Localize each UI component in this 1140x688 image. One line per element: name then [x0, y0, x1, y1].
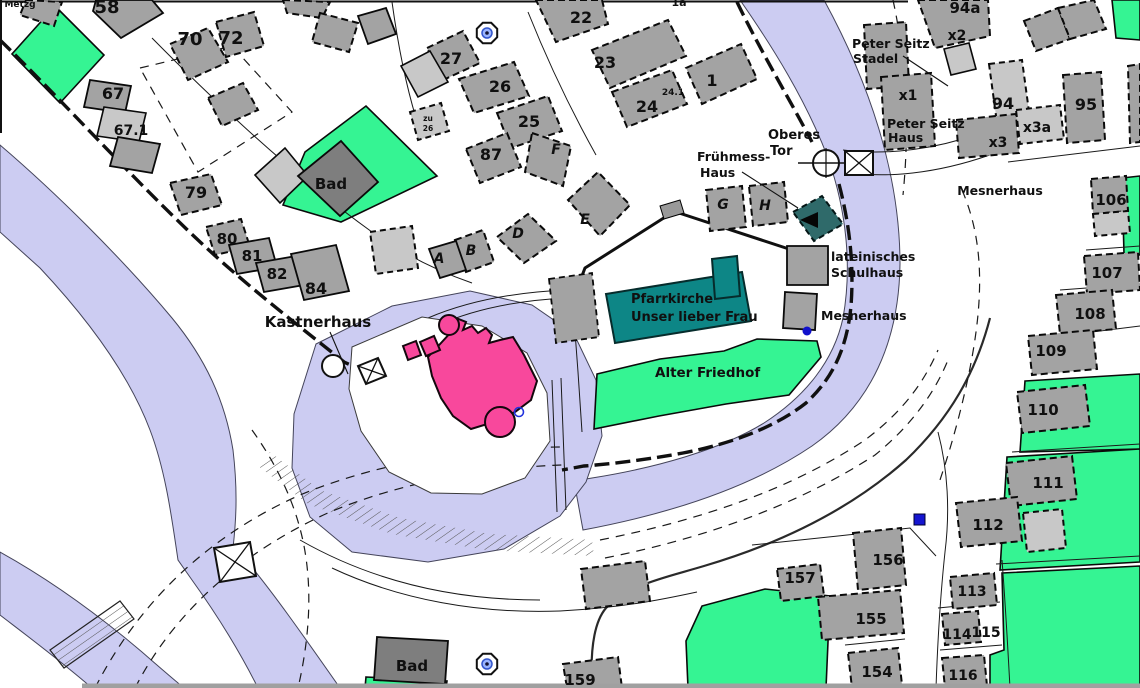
label-peter-seitz-stadel-2: Stadel [853, 51, 898, 66]
label-157: 157 [784, 569, 815, 587]
blue-dot-marker [803, 327, 812, 336]
label-mesnerhaus-tr: Mesnerhaus [957, 183, 1043, 198]
map-edge-bar [82, 684, 1140, 688]
building-lateinisches-schulhaus [787, 246, 828, 285]
label-peter-seitz-stadel-1: Peter Seitz [852, 36, 930, 51]
label-H: H [759, 198, 771, 214]
label-fruehmess-1: Frühmess- [697, 149, 770, 164]
green-parcel [686, 589, 830, 688]
green-parcel [990, 566, 1140, 688]
bridge-icon [845, 151, 873, 175]
label-110: 110 [1027, 401, 1058, 419]
label-115: 115 [971, 625, 1000, 641]
label-94: 94 [992, 94, 1014, 113]
label-E: E [580, 212, 590, 228]
fountain-icon [477, 23, 497, 43]
label-metzg: Metzg [4, 0, 35, 10]
label-80: 80 [217, 230, 238, 248]
label-67: 67 [102, 84, 124, 103]
label-154: 154 [861, 663, 892, 681]
label-pfarrkirche-1: Pfarrkirche [631, 292, 713, 307]
label-alter-friedhof: Alter Friedhof [655, 365, 760, 381]
label-95: 95 [1075, 95, 1097, 114]
label-114: 114 [942, 627, 971, 643]
label-x3: x3 [989, 135, 1008, 151]
label-82: 82 [267, 265, 288, 283]
label-1a: 1a [671, 0, 686, 9]
building-f [525, 133, 571, 186]
label-F: F [551, 142, 561, 158]
label-116: 116 [948, 668, 977, 684]
label-67-1: 67.1 [114, 123, 149, 139]
label-D: D [512, 226, 524, 242]
label-87: 87 [480, 145, 502, 164]
label-26: 26 [489, 77, 511, 96]
label-58: 58 [94, 0, 119, 18]
label-zu-26b: 26 [423, 124, 433, 133]
label-bad-bottom: Bad [396, 657, 428, 675]
churchyard-gate-icon [660, 200, 684, 219]
label-81: 81 [242, 247, 263, 265]
label-24-1: 24.1 [662, 88, 684, 98]
building [110, 137, 160, 173]
label-94a: 94a [950, 0, 981, 17]
building [370, 226, 418, 274]
label-79: 79 [185, 183, 207, 202]
building-mesnerhaus-mid [783, 292, 817, 330]
label-27: 27 [440, 49, 462, 68]
label-113: 113 [957, 584, 986, 600]
building [1023, 509, 1066, 552]
label-peter-seitz-haus-2: Haus [888, 130, 923, 145]
building-x2 [944, 43, 976, 75]
label-peter-seitz-haus-1: Peter Seitz [887, 116, 965, 131]
label-tor: Tor [770, 144, 793, 159]
label-lat-schulhaus-2: Schulhaus [831, 265, 903, 280]
label-24: 24 [636, 97, 658, 116]
bridge-icon [214, 542, 256, 582]
historical-town-map: Metzg5870726767.17980818284Bad27262587zu… [0, 0, 1140, 688]
pfarrkirche-tower [712, 256, 740, 299]
building [208, 83, 258, 126]
label-109: 109 [1035, 342, 1066, 360]
label-22: 22 [570, 8, 592, 27]
castle-round-tower-large [485, 407, 515, 437]
label-A: A [433, 251, 445, 267]
fountain-icon [477, 654, 497, 674]
building [358, 8, 396, 44]
building-d [497, 214, 556, 263]
label-159: 159 [564, 671, 595, 688]
label-x2: x2 [948, 28, 967, 44]
label-zu-26a: zu [423, 114, 433, 123]
label-pfarrkirche-2: Unser lieber Frau [631, 310, 758, 325]
building-x3 [956, 114, 1019, 158]
label-x1: x1 [899, 88, 918, 104]
castle-round-tower-small [439, 315, 459, 335]
label-G: G [717, 197, 729, 213]
label-23: 23 [594, 53, 616, 72]
building-1 [686, 44, 757, 104]
label-25: 25 [518, 112, 540, 131]
label-fruehmess-2: Haus [700, 165, 735, 180]
label-107: 107 [1091, 264, 1122, 282]
label-155: 155 [855, 610, 886, 628]
label-106: 106 [1095, 191, 1126, 209]
building-e [568, 172, 630, 236]
label-70: 70 [177, 29, 202, 50]
label-mesnerhaus-mid: Mesnerhaus [821, 308, 907, 323]
label-1: 1 [706, 71, 717, 90]
building [1128, 64, 1140, 143]
building [312, 13, 358, 52]
building [549, 273, 599, 343]
building [581, 561, 650, 609]
label-kastnerhaus: Kastnerhaus [265, 313, 372, 331]
building [1093, 211, 1130, 236]
label-oberes: Oberes [768, 128, 820, 143]
label-156: 156 [872, 551, 903, 569]
label-108: 108 [1074, 305, 1105, 323]
label-84: 84 [305, 279, 327, 298]
label-lat-schulhaus-1: lateinisches [831, 249, 915, 264]
label-bad-top: Bad [315, 175, 347, 193]
blue-square-marker [914, 514, 925, 525]
label-72: 72 [218, 28, 243, 49]
map-canvas: Metzg5870726767.17980818284Bad27262587zu… [0, 0, 1140, 688]
green-parcel [1112, 0, 1140, 40]
label-B: B [466, 243, 477, 259]
label-111: 111 [1032, 474, 1063, 492]
label-x3a: x3a [1023, 120, 1051, 136]
label-112: 112 [972, 516, 1003, 534]
